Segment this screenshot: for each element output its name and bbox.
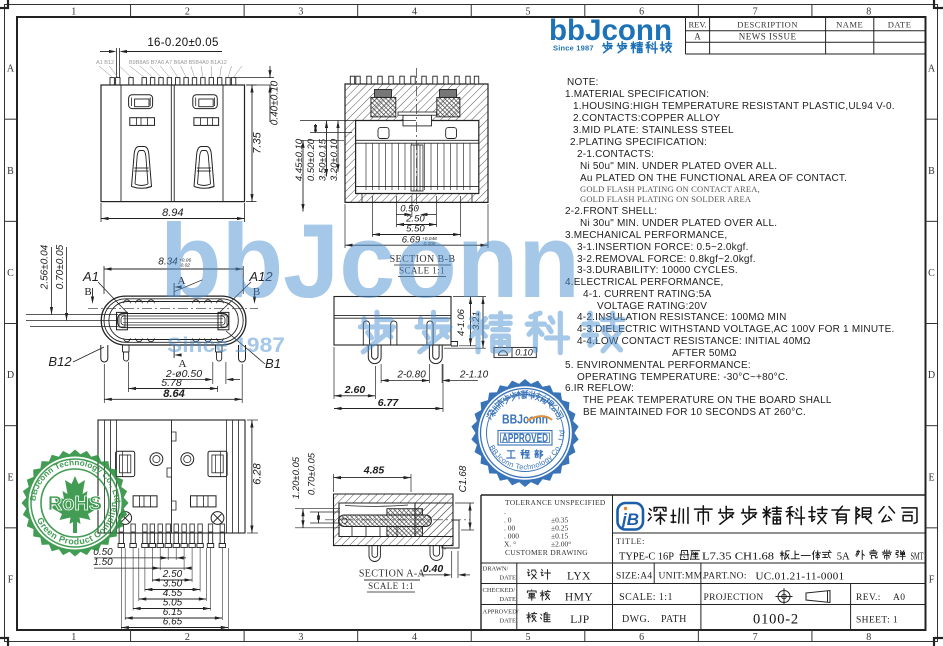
svg-text:0.40: 0.40 xyxy=(423,563,444,575)
svg-text:4: 4 xyxy=(412,632,417,643)
svg-text:A0: A0 xyxy=(893,593,905,603)
svg-text:6.65: 6.65 xyxy=(163,617,183,628)
svg-text:3-1.INSERTION FORCE: 0.5~2.0kg: 3-1.INSERTION FORCE: 0.5~2.0kgf. xyxy=(577,242,749,253)
svg-text:0.40±0.10: 0.40±0.10 xyxy=(270,80,281,125)
svg-text:A: A xyxy=(694,31,701,41)
svg-text:3: 3 xyxy=(298,7,303,18)
svg-text:4.45±0.10: 4.45±0.10 xyxy=(294,138,305,181)
svg-text:1.20±0.05: 1.20±0.05 xyxy=(291,456,302,499)
svg-text:3.20±0.10: 3.20±0.10 xyxy=(329,138,340,181)
svg-text:3.MID PLATE: STAINLESS STEEL: 3.MID PLATE: STAINLESS STEEL xyxy=(573,125,734,136)
svg-text:C1.68: C1.68 xyxy=(458,465,469,492)
svg-text:RoHS: RoHS xyxy=(48,493,102,515)
svg-text:DATE: DATE xyxy=(499,575,516,582)
svg-text:16-0.20±0.05: 16-0.20±0.05 xyxy=(147,37,218,49)
svg-text:APPROVED: APPROVED xyxy=(502,433,548,445)
svg-text:7: 7 xyxy=(753,7,758,18)
svg-text:3-2.REMOVAL FORCE: 0.8kgf~2.0k: 3-2.REMOVAL FORCE: 0.8kgf~2.0kgf. xyxy=(577,254,756,265)
svg-text:B: B xyxy=(7,166,14,177)
svg-text:SCALE 1:1: SCALE 1:1 xyxy=(368,581,414,591)
svg-text:F: F xyxy=(929,574,935,585)
svg-text:Ni 50u" MIN. UNDER PLATED OVER: Ni 50u" MIN. UNDER PLATED OVER ALL. xyxy=(580,161,777,172)
svg-text:4: 4 xyxy=(412,7,417,18)
svg-text:6.77: 6.77 xyxy=(378,397,400,409)
svg-text:BBJconn: BBJconn xyxy=(502,413,548,427)
svg-text:L7.35 CH1.68: L7.35 CH1.68 xyxy=(702,551,775,563)
svg-text:E: E xyxy=(928,472,934,483)
svg-text:SIZE:A4: SIZE:A4 xyxy=(616,572,652,582)
svg-text:5: 5 xyxy=(526,632,531,643)
svg-text:1: 1 xyxy=(71,7,76,18)
svg-text:6: 6 xyxy=(639,632,644,643)
svg-text:7.35: 7.35 xyxy=(252,131,264,153)
svg-text:6.IR REFLOW:: 6.IR REFLOW: xyxy=(565,383,634,394)
svg-text:A1: A1 xyxy=(82,269,99,284)
svg-text:UNIT:MM.: UNIT:MM. xyxy=(659,572,706,582)
svg-text:1.HOUSING:HIGH TEMPERATURE RES: 1.HOUSING:HIGH TEMPERATURE RESISTANT PLA… xyxy=(573,101,895,112)
svg-text:2-1.CONTACTS:: 2-1.CONTACTS: xyxy=(577,149,654,160)
svg-text:GOLD FLASH PLATING ON SOLDER A: GOLD FLASH PLATING ON SOLDER AREA xyxy=(580,194,752,204)
svg-text:A: A xyxy=(7,64,15,75)
svg-text:PATH: PATH xyxy=(661,614,687,625)
svg-text:7: 7 xyxy=(753,632,758,643)
svg-text:B1: B1 xyxy=(265,356,281,371)
svg-text:2-0.80: 2-0.80 xyxy=(396,370,426,381)
svg-text:DATE: DATE xyxy=(888,20,912,30)
svg-text:SCALE: 1:1: SCALE: 1:1 xyxy=(619,592,673,603)
svg-text:NEWS ISSUE: NEWS ISSUE xyxy=(739,31,797,41)
svg-text:5: 5 xyxy=(526,7,531,18)
svg-text:5A: 5A xyxy=(837,551,850,563)
svg-text:DESCRIPTION: DESCRIPTION xyxy=(737,20,798,30)
svg-text:3-3.DURABILITY: 10000 CYCLES.: 3-3.DURABILITY: 10000 CYCLES. xyxy=(577,265,738,276)
svg-text:Since 1987: Since 1987 xyxy=(167,334,285,357)
svg-text:2-1.10: 2-1.10 xyxy=(459,370,489,381)
svg-text:NAME: NAME xyxy=(836,20,863,30)
svg-text:TOLERANCE UNSPECIFIED: TOLERANCE UNSPECIFIED xyxy=(505,498,606,507)
svg-text:DATE: DATE xyxy=(499,618,516,625)
svg-text:APPROVED/: APPROVED/ xyxy=(483,609,519,616)
svg-text:B9B8A5 B7A6 A7 B6A8 B5B4A9 B1A: B9B8A5 B7A6 A7 B6A8 B5B4A9 B1A12 xyxy=(129,60,227,66)
svg-text:0100-2: 0100-2 xyxy=(753,612,799,628)
svg-text:1.50: 1.50 xyxy=(93,557,113,568)
svg-text:F: F xyxy=(8,574,14,585)
svg-text:SHEET: 1: SHEET: 1 xyxy=(856,616,898,626)
svg-text:2.CONTACTS:COPPER ALLOY: 2.CONTACTS:COPPER ALLOY xyxy=(573,113,720,124)
svg-text:REV.: REV. xyxy=(688,20,706,30)
svg-text:0.10: 0.10 xyxy=(515,348,533,358)
svg-text:0.70±0.05: 0.70±0.05 xyxy=(307,452,318,495)
svg-text:A: A xyxy=(928,64,936,75)
svg-text:DRAWN/: DRAWN/ xyxy=(483,566,509,573)
svg-text:D: D xyxy=(7,370,14,381)
svg-text:6.28: 6.28 xyxy=(252,462,264,484)
svg-text:Since 1987: Since 1987 xyxy=(553,44,594,53)
svg-text:B: B xyxy=(84,286,91,298)
svg-text:AFTER 50MΩ: AFTER 50MΩ xyxy=(672,348,737,359)
svg-text:3: 3 xyxy=(298,632,303,643)
svg-text:8.64: 8.64 xyxy=(163,388,184,400)
svg-text:NOTE:: NOTE: xyxy=(567,77,599,88)
svg-text:1.MATERIAL SPECIFICATION:: 1.MATERIAL SPECIFICATION: xyxy=(565,89,709,100)
svg-text:bbJconn: bbJconn xyxy=(160,203,580,320)
svg-text:3.MECHANICAL PERFORMANCE,: 3.MECHANICAL PERFORMANCE, xyxy=(565,230,727,241)
svg-text:8: 8 xyxy=(866,7,871,18)
svg-text:B: B xyxy=(928,166,935,177)
svg-text:2.60: 2.60 xyxy=(344,384,366,396)
svg-text:CUSTOMER DRAWING: CUSTOMER DRAWING xyxy=(505,548,588,557)
svg-text:4.85: 4.85 xyxy=(363,465,385,477)
svg-text:SMT: SMT xyxy=(911,551,924,563)
svg-text:LJP: LJP xyxy=(570,614,589,626)
svg-text:THE PEAK TEMPERATURE ON THE BO: THE PEAK TEMPERATURE ON THE BOARD SHALL xyxy=(583,395,832,406)
svg-text:LYX: LYX xyxy=(567,571,591,583)
svg-text:2: 2 xyxy=(185,7,190,18)
svg-text:2.PLATING SPECIFICATION:: 2.PLATING SPECIFICATION: xyxy=(570,137,707,148)
svg-text:SECTION A-A: SECTION A-A xyxy=(359,569,426,580)
svg-text:A1 B12: A1 B12 xyxy=(96,60,114,66)
svg-text:OPERATING TEMPERATURE: -30°C~+: OPERATING TEMPERATURE: -30°C~+80°C. xyxy=(577,372,788,383)
svg-text:PROJECTION: PROJECTION xyxy=(704,593,764,603)
svg-text:D: D xyxy=(928,370,935,381)
svg-text:VOLTAGE RATING:20V: VOLTAGE RATING:20V xyxy=(597,301,707,312)
svg-text:CHECKED/: CHECKED/ xyxy=(483,587,516,594)
svg-text:8: 8 xyxy=(866,632,871,643)
svg-text:UC.01.21-11-0001: UC.01.21-11-0001 xyxy=(755,571,844,583)
svg-text:C: C xyxy=(7,268,14,279)
svg-text:TITLE:: TITLE: xyxy=(616,536,645,546)
svg-text:5. ENVIRONMENTAL PERFORMANCE:: 5. ENVIRONMENTAL PERFORMANCE: xyxy=(565,360,751,371)
svg-text:PART.NO:: PART.NO: xyxy=(704,572,747,582)
svg-text:REV.:: REV.: xyxy=(856,593,881,603)
svg-text:4.ELECTRICAL PERFORMANCE,: 4.ELECTRICAL PERFORMANCE, xyxy=(565,277,724,288)
svg-text:Au PLATED ON THE FUNCTIONAL AR: Au PLATED ON THE FUNCTIONAL AREA OF CONT… xyxy=(580,173,847,184)
svg-text:2: 2 xyxy=(185,632,190,643)
svg-text:HMY: HMY xyxy=(565,592,594,604)
svg-text:0.70±0.05: 0.70±0.05 xyxy=(55,244,66,289)
svg-text:DWG.: DWG. xyxy=(622,614,650,625)
svg-text:B12: B12 xyxy=(48,354,72,369)
svg-text:1: 1 xyxy=(71,632,76,643)
svg-text:2.56±0.04: 2.56±0.04 xyxy=(40,244,51,290)
svg-text:GOLD FLASH PLATING ON CONTACT: GOLD FLASH PLATING ON CONTACT AREA, xyxy=(580,184,760,194)
svg-text:4-3.DIELECTRIC WITHSTAND VOLTA: 4-3.DIELECTRIC WITHSTAND VOLTAGE,AC 100V… xyxy=(577,324,895,335)
svg-text:C: C xyxy=(928,268,935,279)
svg-text:TYPE-C 16P: TYPE-C 16P xyxy=(619,551,674,563)
svg-text:bbJconn: bbJconn xyxy=(549,14,672,47)
svg-text:jB: jB xyxy=(620,510,639,529)
svg-text:0.50±0.20: 0.50±0.20 xyxy=(306,138,317,181)
svg-text:E: E xyxy=(7,472,13,483)
svg-text:3.50±0.15: 3.50±0.15 xyxy=(317,138,328,181)
svg-text:Ni 30u" MIN. UNDER PLATED OVER: Ni 30u" MIN. UNDER PLATED OVER ALL. xyxy=(580,218,777,229)
svg-text:DATE: DATE xyxy=(499,596,516,603)
svg-text:BE MAINTAINED FOR 10 SECONDS A: BE MAINTAINED FOR 10 SECONDS AT 260°C. xyxy=(583,407,806,418)
svg-text:4-1. CURRENT RATING:5A: 4-1. CURRENT RATING:5A xyxy=(583,289,711,300)
